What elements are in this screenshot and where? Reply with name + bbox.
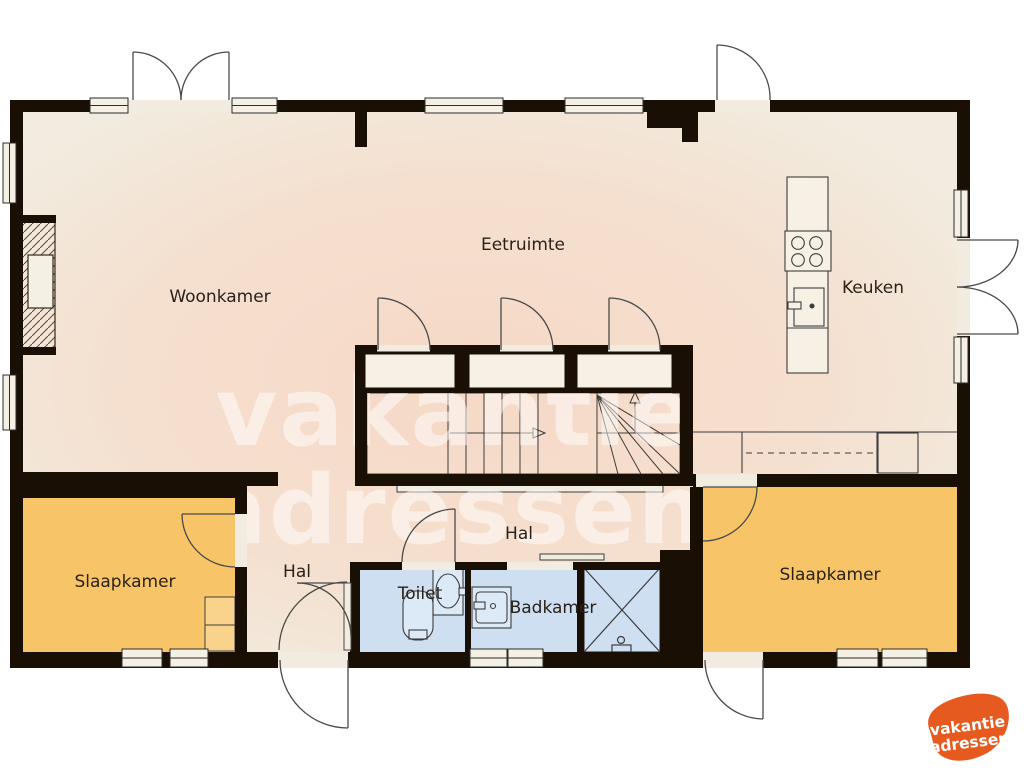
opening-back-door [703, 652, 763, 668]
door-arc [280, 660, 348, 728]
wall-wetroom-top [350, 562, 660, 570]
oven-handle [788, 302, 801, 309]
door-arc [717, 45, 770, 100]
room-label-hal-upper: Hal [505, 524, 533, 544]
wall-fireplace-top [10, 215, 56, 223]
closets [364, 353, 673, 389]
oven-knob [810, 304, 814, 308]
wall-bedroom-left-top [10, 472, 247, 498]
door-arc [133, 52, 181, 100]
floorplan-canvas: vakantie adressen [0, 0, 1024, 768]
wall-bedroom-left-side [235, 498, 247, 514]
opening-bedroom-right-door [696, 474, 757, 487]
wall-right [957, 100, 970, 668]
kitchen-unit [787, 177, 828, 373]
wall-step [682, 112, 698, 142]
wardrobe-box [205, 597, 235, 625]
opening-badkamer-door [507, 562, 573, 570]
wall-fireplace-bottom [10, 347, 56, 355]
room-label-hal-lower: Hal [283, 562, 311, 582]
kitchen-island [785, 177, 831, 373]
closet-box [576, 353, 673, 389]
room-label-badkamer: Badkamer [510, 598, 597, 618]
room-label-slaapkamer-left: Slaapkamer [74, 572, 175, 592]
door-arc [705, 660, 763, 719]
fireplace-hearth [28, 255, 53, 308]
room-label-eetruimte: Eetruimte [481, 235, 565, 255]
opening-toilet-door [402, 562, 455, 570]
stove [785, 231, 831, 271]
opening-top-door [715, 100, 770, 112]
door-arc [181, 52, 229, 100]
opening-front-door [278, 652, 348, 668]
wall-stub [355, 112, 367, 147]
opening-bedroom-left-door [235, 514, 247, 567]
wall-stair-right [680, 393, 693, 486]
opening-top-double-door [128, 100, 232, 112]
room-label-toilet: Toilet [397, 584, 443, 604]
wardrobe [205, 597, 235, 651]
wall-shower-right [660, 550, 703, 652]
floorplan-page: vakantie adressen [0, 0, 1024, 768]
brand-logo: vakantie adressen [924, 690, 1014, 764]
room-label-slaapkamer-right: Slaapkamer [779, 565, 880, 585]
washbasin [472, 587, 511, 628]
room-label-woonkamer: Woonkamer [169, 287, 270, 307]
wall-toilet-badkamer [465, 568, 471, 652]
room-label-keuken: Keuken [842, 278, 904, 298]
closet-box [468, 353, 566, 389]
closet-box [364, 353, 456, 389]
wall-bedroom-right-side [690, 487, 703, 550]
wall-stair-left [355, 393, 367, 486]
wall-stair-bottom [355, 474, 693, 486]
wardrobe-box [205, 625, 235, 651]
wall-bedroom-left-side [235, 567, 247, 652]
washbasin-tap [474, 602, 485, 609]
